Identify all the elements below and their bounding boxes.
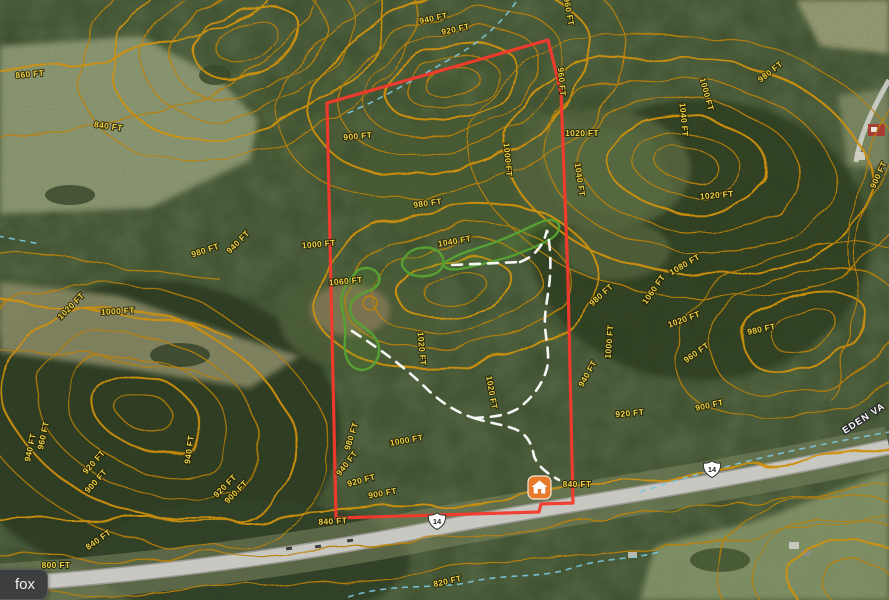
contour-label: 1000 FT <box>101 305 136 317</box>
cutoff-tooltip: fox <box>0 569 48 600</box>
svg-text:14: 14 <box>433 517 442 526</box>
svg-text:14: 14 <box>708 465 717 474</box>
house-marker[interactable] <box>528 476 551 499</box>
contour-label: 1020 FT <box>565 128 599 138</box>
contour-label: 840 FT <box>563 479 592 489</box>
contour-label: 840 FT <box>318 515 348 527</box>
cutoff-tooltip-text: fox <box>15 576 35 593</box>
contour-label: 800 FT <box>42 560 71 570</box>
map-canvas[interactable]: 860 FT840 FT940 FT920 FT960 FT900 FT1000… <box>0 0 889 600</box>
map-layers: 860 FT840 FT940 FT920 FT960 FT900 FT1000… <box>0 0 889 600</box>
